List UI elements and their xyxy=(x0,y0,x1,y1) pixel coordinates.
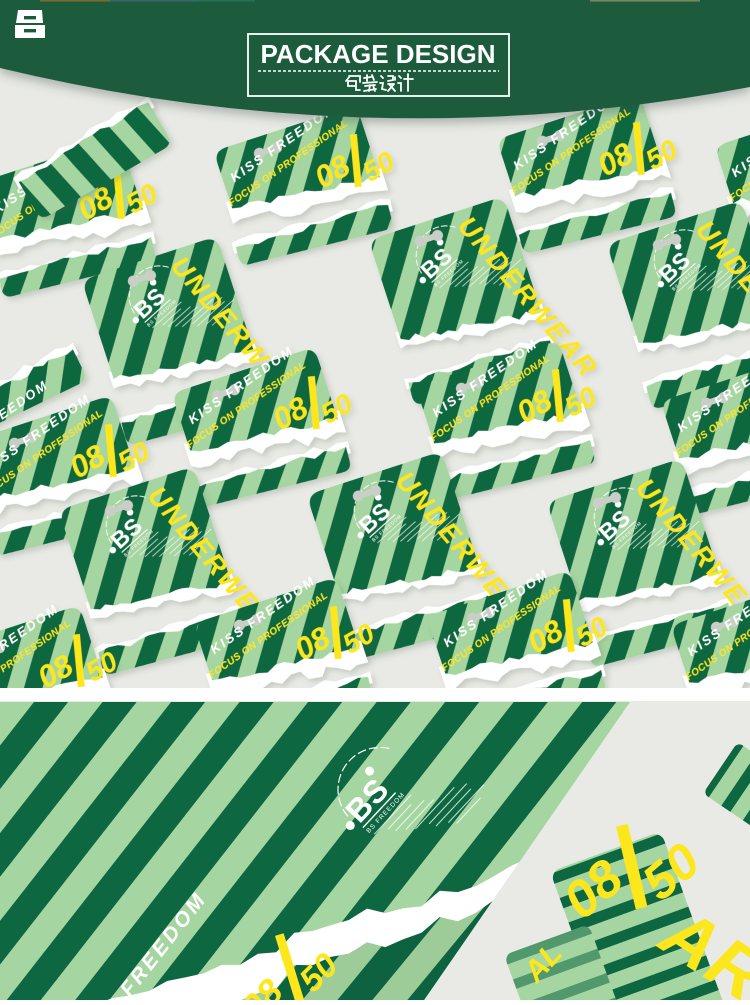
svg-text:PACKAGE DESIGN: PACKAGE DESIGN xyxy=(261,39,496,69)
